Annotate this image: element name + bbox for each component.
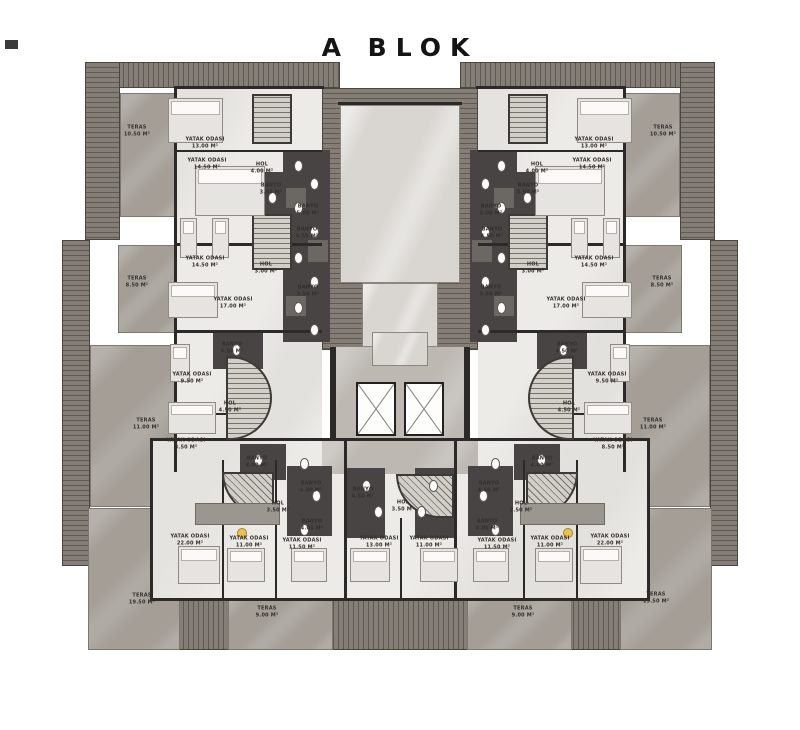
room-label: HOL3.00 M² bbox=[522, 261, 545, 275]
room-label: HOL3.00 M² bbox=[255, 261, 278, 275]
room-label: BANYO4.50 M² bbox=[296, 226, 319, 240]
room-name: BANYO bbox=[531, 455, 554, 462]
room-name: YATAK ODASI bbox=[477, 537, 516, 544]
bed-icon bbox=[603, 218, 620, 258]
room-area: 4.00 M² bbox=[301, 525, 324, 532]
room-label: TERAS8.50 M² bbox=[126, 275, 149, 289]
wall bbox=[400, 518, 402, 598]
room-name: HOL bbox=[558, 400, 581, 407]
room-name: YATAK ODASI bbox=[359, 535, 398, 542]
room-label: TERAS19.50 M² bbox=[129, 592, 155, 606]
room-area: 3.00 M² bbox=[522, 268, 545, 275]
room-name: YATAK ODASI bbox=[229, 535, 268, 542]
room-name: HOL bbox=[255, 261, 278, 268]
room-name: BANYO bbox=[297, 203, 320, 210]
room-area: 11.00 M² bbox=[640, 424, 666, 431]
room-name: BANYO bbox=[297, 284, 320, 291]
wall bbox=[176, 243, 322, 246]
room-name: YATAK ODASI bbox=[172, 371, 211, 378]
room-area: 4.50 M² bbox=[558, 407, 581, 414]
room-name: YATAK ODASI bbox=[185, 255, 224, 262]
room-label: BANYO3.50 M² bbox=[517, 182, 540, 196]
room-area: 19.50 M² bbox=[129, 599, 155, 606]
room-name: HOL bbox=[267, 500, 290, 507]
room-label: YATAK ODASI13.00 M² bbox=[574, 136, 613, 150]
room-label: TERAS9.00 M² bbox=[256, 605, 279, 619]
bed-icon bbox=[580, 546, 622, 584]
room-label: BANYO4.00 M² bbox=[246, 455, 269, 469]
room-area: 13.00 M² bbox=[185, 143, 224, 150]
room-area: 10.50 M² bbox=[650, 131, 676, 138]
wall bbox=[275, 460, 277, 598]
room-area: 13.00 M² bbox=[359, 542, 398, 549]
room-label: BANYO3.50 M² bbox=[260, 182, 283, 196]
room-area: 3.50 M² bbox=[510, 507, 533, 514]
wall bbox=[150, 438, 650, 441]
bed-icon bbox=[180, 218, 197, 258]
room-label: TERAS8.50 M² bbox=[651, 275, 674, 289]
bed-icon bbox=[178, 546, 220, 584]
room-label: YATAK ODASI17.00 M² bbox=[213, 296, 252, 310]
roof-strip-right-upper bbox=[680, 62, 715, 240]
room-area: 4.50 M² bbox=[556, 348, 579, 355]
room-label: YATAK ODASI8.50 M² bbox=[593, 437, 632, 451]
room-name: TERAS bbox=[650, 124, 676, 131]
room-name: YATAK ODASI bbox=[187, 157, 226, 164]
room-name: YATAK ODASI bbox=[166, 437, 205, 444]
room-label: BANYO4.50 M² bbox=[221, 341, 244, 355]
room-label: YATAK ODASI11.50 M² bbox=[477, 537, 516, 551]
room-name: YATAK ODASI bbox=[546, 296, 585, 303]
room-area: 19.50 M² bbox=[643, 598, 669, 605]
wall bbox=[176, 150, 322, 152]
room-name: BANYO bbox=[352, 486, 375, 493]
room-label: BANYO4.00 M² bbox=[531, 455, 554, 469]
room-area: 11.50 M² bbox=[477, 544, 516, 551]
room-area: 4.50 M² bbox=[296, 233, 319, 240]
wall bbox=[647, 440, 650, 600]
lobby-wall-left bbox=[330, 347, 336, 440]
room-name: YATAK ODASI bbox=[530, 535, 569, 542]
room-area: 9.00 M² bbox=[512, 612, 535, 619]
room-name: YATAK ODASI bbox=[213, 296, 252, 303]
room-area: 11.00 M² bbox=[530, 542, 569, 549]
room-name: HOL bbox=[510, 500, 533, 507]
room-area: 11.00 M² bbox=[409, 542, 448, 549]
room-name: HOL bbox=[219, 400, 242, 407]
roof-band-top-left bbox=[118, 62, 340, 88]
staircase-icon bbox=[252, 94, 292, 144]
room-name: BANYO bbox=[556, 341, 579, 348]
room-name: TERAS bbox=[133, 417, 159, 424]
toilet-icon bbox=[481, 178, 490, 190]
bed-icon bbox=[227, 548, 265, 582]
room-name: BANYO bbox=[301, 518, 324, 525]
wall bbox=[150, 440, 153, 600]
wall bbox=[344, 440, 347, 598]
room-name: HOL bbox=[522, 261, 545, 268]
room-label: BANYO4.00 M² bbox=[301, 518, 324, 532]
room-name: BANYO bbox=[260, 182, 283, 189]
room-area: 8.50 M² bbox=[126, 282, 149, 289]
room-name: YATAK ODASI bbox=[587, 371, 626, 378]
room-label: YATAK ODASI11.00 M² bbox=[409, 535, 448, 549]
room-area: 3.50 M² bbox=[517, 189, 540, 196]
roof-strip-right-lower bbox=[710, 240, 738, 566]
bed-icon bbox=[420, 548, 458, 582]
lobby-wall-right bbox=[464, 347, 470, 440]
room-name: YATAK ODASI bbox=[572, 157, 611, 164]
room-area: 11.00 M² bbox=[229, 542, 268, 549]
bed-icon bbox=[350, 548, 390, 582]
room-area: 4.00 M² bbox=[246, 462, 269, 469]
room-name: BANYO bbox=[246, 455, 269, 462]
room-area: 9.50 M² bbox=[172, 378, 211, 385]
staircase-icon bbox=[508, 94, 548, 144]
lobby-skylight bbox=[372, 332, 428, 366]
room-label: TERAS11.00 M² bbox=[640, 417, 666, 431]
room-name: HOL bbox=[392, 499, 415, 506]
room-area: 4.50 M² bbox=[478, 487, 501, 494]
toilet-icon bbox=[497, 252, 506, 264]
room-label: YATAK ODASI14.50 M² bbox=[187, 157, 226, 171]
elevator-shaft-icon bbox=[356, 382, 396, 436]
bed-icon bbox=[571, 218, 588, 258]
room-name: HOL bbox=[526, 161, 549, 168]
room-area: 4.50 M² bbox=[352, 493, 375, 500]
toilet-icon bbox=[429, 480, 438, 492]
room-area: 3.50 M² bbox=[260, 189, 283, 196]
room-label: HOL4.50 M² bbox=[219, 400, 242, 414]
wall bbox=[176, 86, 324, 89]
floor-plan: A BLOK bbox=[0, 0, 800, 730]
closet bbox=[520, 503, 605, 525]
toilet-icon bbox=[497, 160, 506, 172]
toilet-icon bbox=[300, 458, 309, 470]
room-name: YATAK ODASI bbox=[185, 136, 224, 143]
room-label: BANYO4.00 M² bbox=[476, 518, 499, 532]
bed-icon bbox=[535, 548, 573, 582]
room-area: 4.50 M² bbox=[219, 407, 242, 414]
room-label: HOL3.50 M² bbox=[267, 500, 290, 514]
toilet-icon bbox=[497, 302, 506, 314]
room-name: YATAK ODASI bbox=[574, 255, 613, 262]
room-name: YATAK ODASI bbox=[593, 437, 632, 444]
bed-icon bbox=[168, 402, 216, 434]
toilet-icon bbox=[481, 324, 490, 336]
room-label: YATAK ODASI13.00 M² bbox=[359, 535, 398, 549]
roof-band-top-right bbox=[460, 62, 682, 88]
room-name: BANYO bbox=[480, 203, 503, 210]
room-name: BANYO bbox=[480, 284, 503, 291]
wall bbox=[176, 330, 322, 333]
room-label: YATAK ODASI11.00 M² bbox=[229, 535, 268, 549]
room-label: YATAK ODASI22.00 M² bbox=[170, 533, 209, 547]
bed-icon bbox=[584, 402, 632, 434]
room-area: 3.50 M² bbox=[267, 507, 290, 514]
room-name: BANYO bbox=[296, 226, 319, 233]
room-label: BANYO5.00 M² bbox=[297, 203, 320, 217]
elevator-shaft-icon bbox=[404, 382, 444, 436]
room-label: TERAS10.50 M² bbox=[650, 124, 676, 138]
room-name: YATAK ODASI bbox=[590, 533, 629, 540]
room-label: YATAK ODASI9.50 M² bbox=[172, 371, 211, 385]
roof-strip-left-upper bbox=[85, 62, 120, 240]
room-area: 11.00 M² bbox=[133, 424, 159, 431]
room-area: 14.50 M² bbox=[187, 164, 226, 171]
room-area: 4.50 M² bbox=[300, 487, 323, 494]
room-area: 4.00 M² bbox=[476, 525, 499, 532]
room-area: 4.50 M² bbox=[221, 348, 244, 355]
roof-strip-left-lower bbox=[62, 240, 90, 566]
wall bbox=[478, 150, 624, 152]
wall bbox=[523, 460, 525, 598]
wall bbox=[476, 86, 624, 89]
room-area: 17.00 M² bbox=[213, 303, 252, 310]
terrace bbox=[624, 245, 682, 333]
toilet-icon bbox=[294, 160, 303, 172]
wall bbox=[478, 330, 624, 333]
toilet-icon bbox=[374, 506, 383, 518]
wall bbox=[150, 598, 650, 601]
page-title: A BLOK bbox=[0, 33, 800, 62]
room-area: 9.50 M² bbox=[587, 378, 626, 385]
room-name: BANYO bbox=[478, 480, 501, 487]
atrium bbox=[340, 105, 460, 283]
room-area: 3.00 M² bbox=[255, 268, 278, 275]
room-area: 11.50 M² bbox=[282, 544, 321, 551]
room-name: TERAS bbox=[124, 124, 150, 131]
room-name: TERAS bbox=[129, 592, 155, 599]
toilet-icon bbox=[294, 252, 303, 264]
room-label: YATAK ODASI8.50 M² bbox=[166, 437, 205, 451]
room-label: BANYO4.50 M² bbox=[352, 486, 375, 500]
bed-icon bbox=[212, 218, 229, 258]
bed-icon bbox=[473, 548, 509, 582]
room-area: 3.50 M² bbox=[297, 291, 320, 298]
atrium-top-wall bbox=[338, 102, 462, 105]
room-area: 22.00 M² bbox=[590, 540, 629, 547]
room-area: 3.50 M² bbox=[392, 506, 415, 513]
room-name: TERAS bbox=[640, 417, 666, 424]
toilet-icon bbox=[310, 178, 319, 190]
room-label: YATAK ODASI13.00 M² bbox=[185, 136, 224, 150]
room-label: BANYO3.50 M² bbox=[480, 284, 503, 298]
room-label: HOL3.50 M² bbox=[510, 500, 533, 514]
room-area: 4.00 M² bbox=[531, 462, 554, 469]
room-label: TERAS9.00 M² bbox=[512, 605, 535, 619]
room-label: BANYO4.50 M² bbox=[556, 341, 579, 355]
room-label: BANYO5.00 M² bbox=[480, 203, 503, 217]
room-label: TERAS19.50 M² bbox=[643, 591, 669, 605]
room-area: 10.50 M² bbox=[124, 131, 150, 138]
room-name: BANYO bbox=[481, 226, 504, 233]
room-name: YATAK ODASI bbox=[409, 535, 448, 542]
room-name: HOL bbox=[251, 161, 274, 168]
room-name: TERAS bbox=[256, 605, 279, 612]
room-label: YATAK ODASI9.50 M² bbox=[587, 371, 626, 385]
room-label: BANYO4.50 M² bbox=[300, 480, 323, 494]
room-label: YATAK ODASI14.50 M² bbox=[185, 255, 224, 269]
room-label: TERAS11.00 M² bbox=[133, 417, 159, 431]
room-name: TERAS bbox=[126, 275, 149, 282]
room-area: 5.00 M² bbox=[297, 210, 320, 217]
room-name: TERAS bbox=[651, 275, 674, 282]
room-label: YATAK ODASI14.50 M² bbox=[572, 157, 611, 171]
room-area: 8.50 M² bbox=[651, 282, 674, 289]
room-label: YATAK ODASI11.00 M² bbox=[530, 535, 569, 549]
room-area: 4.00 M² bbox=[526, 168, 549, 175]
room-area: 3.50 M² bbox=[480, 291, 503, 298]
room-label: BANYO4.50 M² bbox=[478, 480, 501, 494]
room-name: BANYO bbox=[517, 182, 540, 189]
room-area: 5.00 M² bbox=[480, 210, 503, 217]
toilet-icon bbox=[294, 302, 303, 314]
room-name: BANYO bbox=[221, 341, 244, 348]
room-name: YATAK ODASI bbox=[282, 537, 321, 544]
bed-icon bbox=[582, 282, 632, 318]
room-area: 8.50 M² bbox=[593, 444, 632, 451]
room-label: HOL4.50 M² bbox=[558, 400, 581, 414]
room-area: 14.50 M² bbox=[185, 262, 224, 269]
corner-mark bbox=[5, 40, 18, 49]
room-label: HOL4.00 M² bbox=[526, 161, 549, 175]
bathroom bbox=[345, 468, 385, 538]
room-area: 13.00 M² bbox=[574, 143, 613, 150]
bed-icon bbox=[291, 548, 327, 582]
room-label: BANYO3.50 M² bbox=[297, 284, 320, 298]
toilet-icon bbox=[310, 324, 319, 336]
room-name: TERAS bbox=[643, 591, 669, 598]
room-area: 4.00 M² bbox=[251, 168, 274, 175]
room-area: 22.00 M² bbox=[170, 540, 209, 547]
toilet-icon bbox=[491, 458, 500, 470]
room-label: YATAK ODASI17.00 M² bbox=[546, 296, 585, 310]
room-label: YATAK ODASI22.00 M² bbox=[590, 533, 629, 547]
room-name: TERAS bbox=[512, 605, 535, 612]
bed-icon bbox=[168, 282, 218, 318]
room-area: 14.50 M² bbox=[574, 262, 613, 269]
room-area: 9.00 M² bbox=[256, 612, 279, 619]
room-area: 17.00 M² bbox=[546, 303, 585, 310]
room-label: HOL3.50 M² bbox=[392, 499, 415, 513]
room-area: 4.50 M² bbox=[481, 233, 504, 240]
toilet-icon bbox=[417, 506, 426, 518]
room-label: BANYO4.50 M² bbox=[481, 226, 504, 240]
room-label: TERAS10.50 M² bbox=[124, 124, 150, 138]
room-label: HOL4.00 M² bbox=[251, 161, 274, 175]
room-name: BANYO bbox=[476, 518, 499, 525]
room-name: YATAK ODASI bbox=[170, 533, 209, 540]
room-area: 14.50 M² bbox=[572, 164, 611, 171]
room-area: 8.50 M² bbox=[166, 444, 205, 451]
room-name: YATAK ODASI bbox=[574, 136, 613, 143]
room-name: BANYO bbox=[300, 480, 323, 487]
room-label: YATAK ODASI11.50 M² bbox=[282, 537, 321, 551]
room-label: YATAK ODASI14.50 M² bbox=[574, 255, 613, 269]
